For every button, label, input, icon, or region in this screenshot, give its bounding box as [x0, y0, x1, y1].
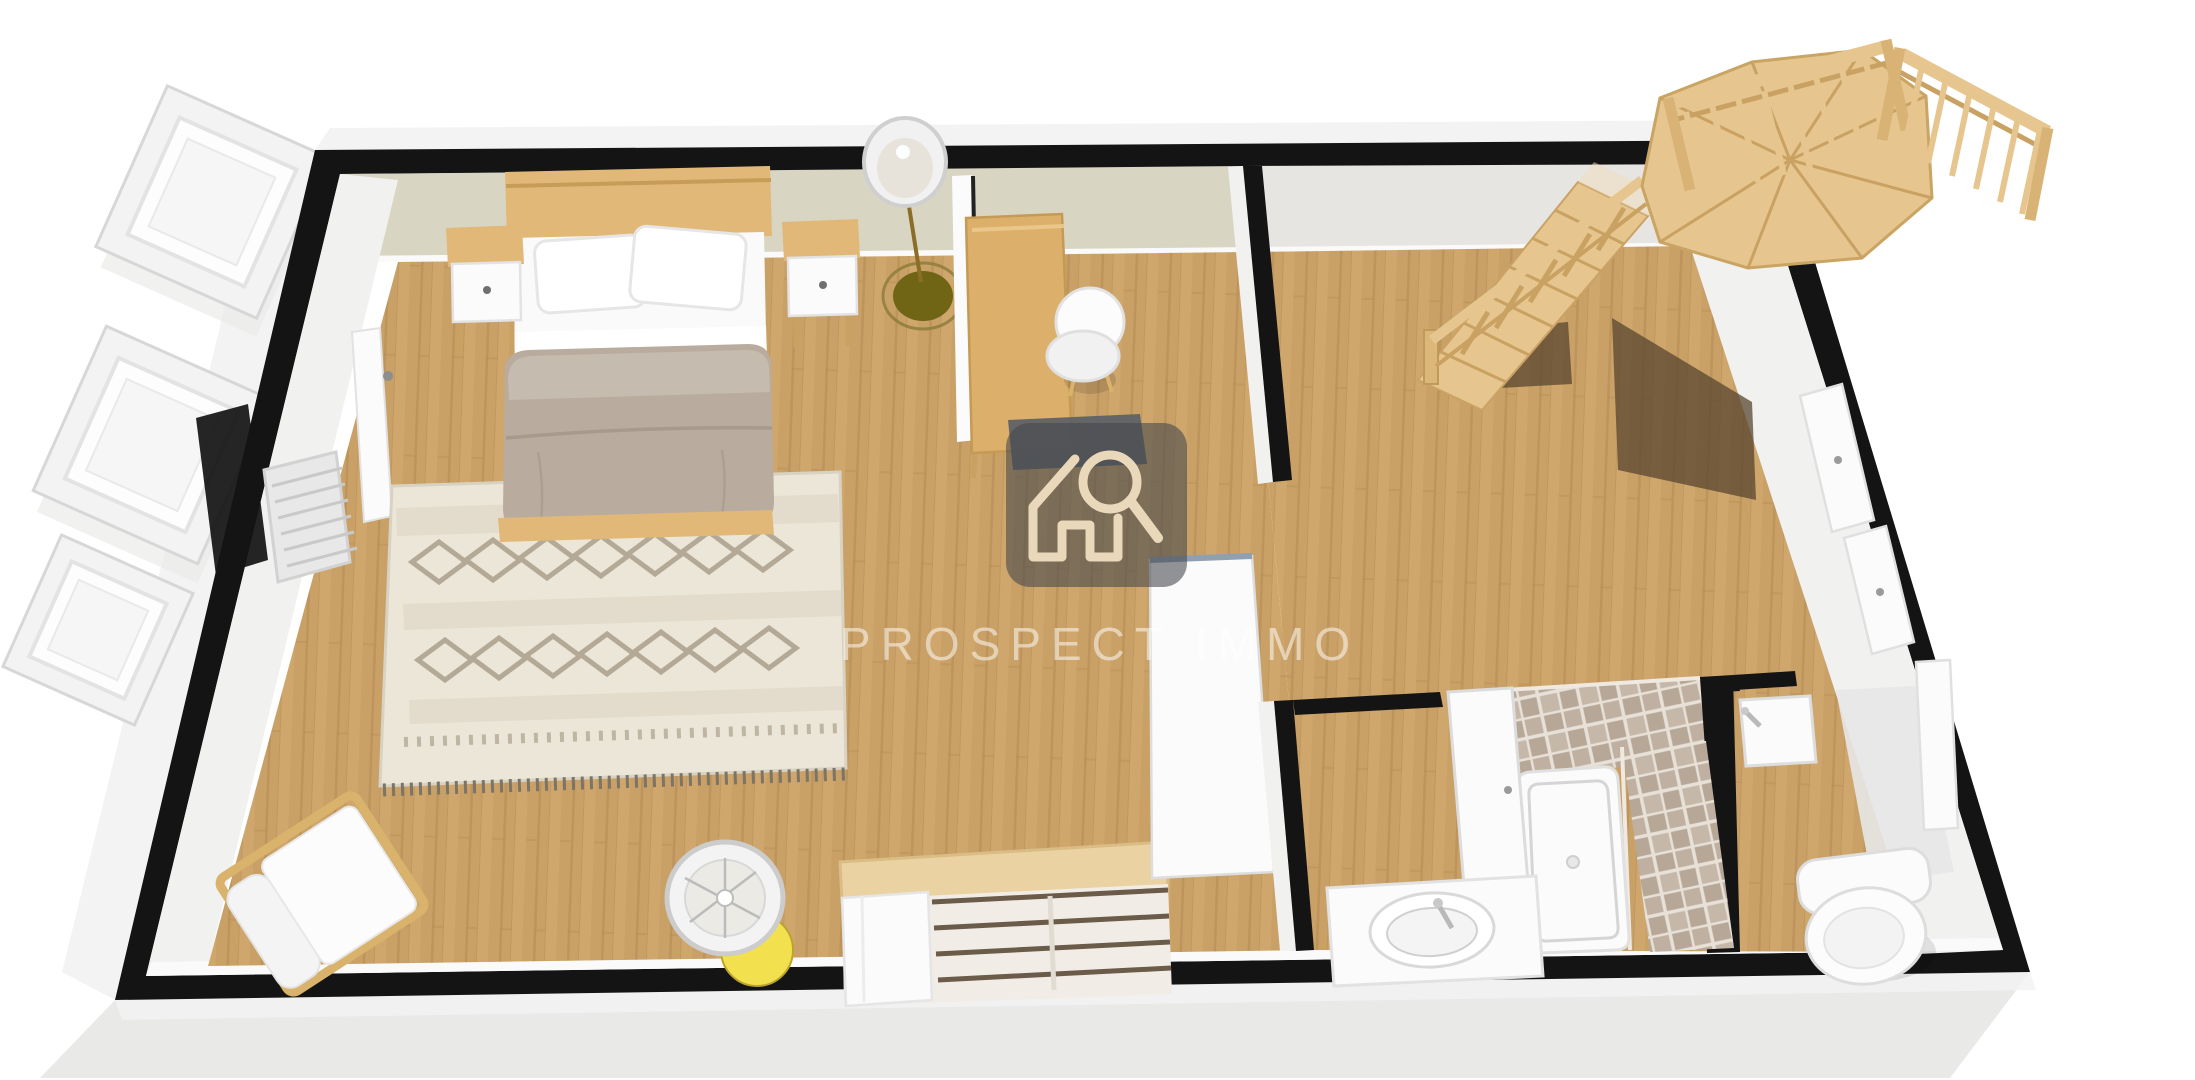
- floorplan-3d-canvas[interactable]: PROSPECT IMMO: [0, 0, 2195, 1080]
- pillow: [629, 225, 747, 310]
- room-divider: [1150, 556, 1274, 878]
- floorplan-viewport: PROSPECT IMMO: [0, 0, 2195, 1080]
- open-wardrobe: [840, 842, 1172, 1006]
- pillow: [534, 234, 647, 313]
- double-bed: [498, 166, 774, 542]
- wc-door-open: [1916, 660, 1958, 830]
- hand-basin: [1740, 696, 1816, 766]
- vanity-sink: [1327, 876, 1543, 986]
- watermark-text: PROSPECT IMMO: [840, 618, 1360, 670]
